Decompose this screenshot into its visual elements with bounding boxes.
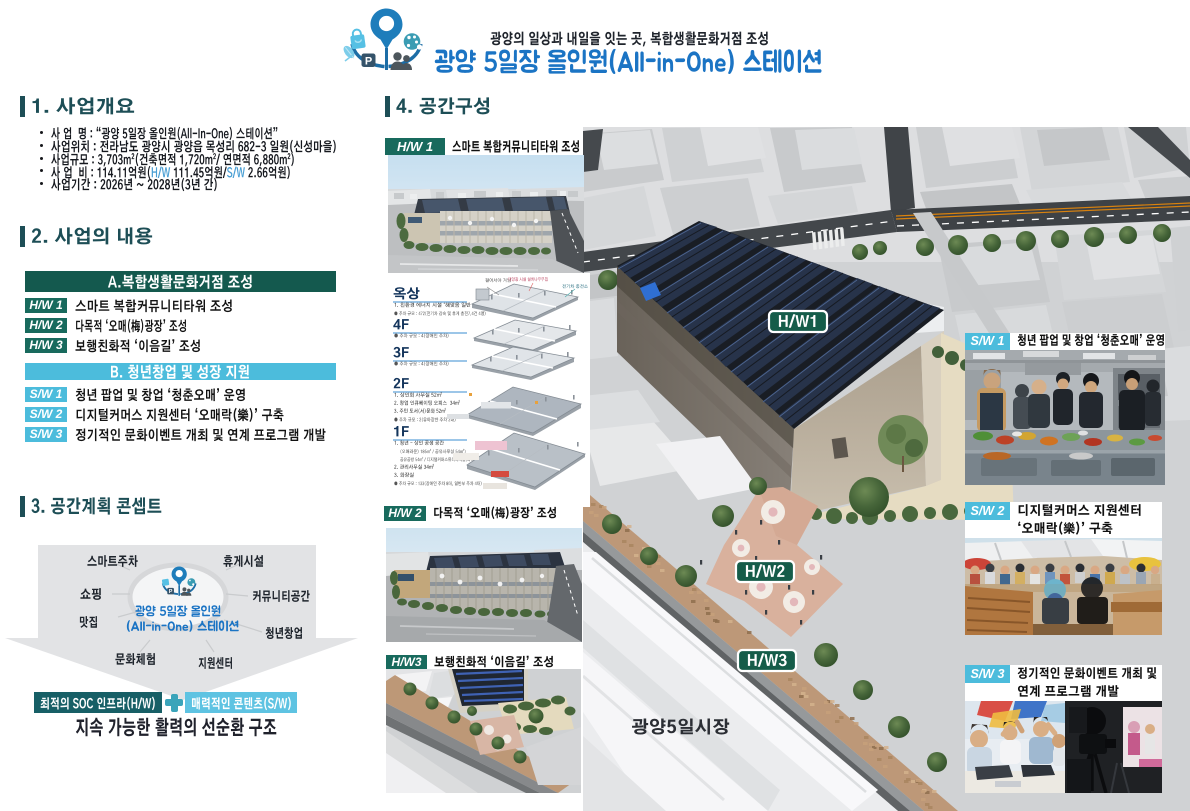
svg-text:P: P: [169, 589, 173, 595]
svg-text:P: P: [365, 56, 372, 68]
